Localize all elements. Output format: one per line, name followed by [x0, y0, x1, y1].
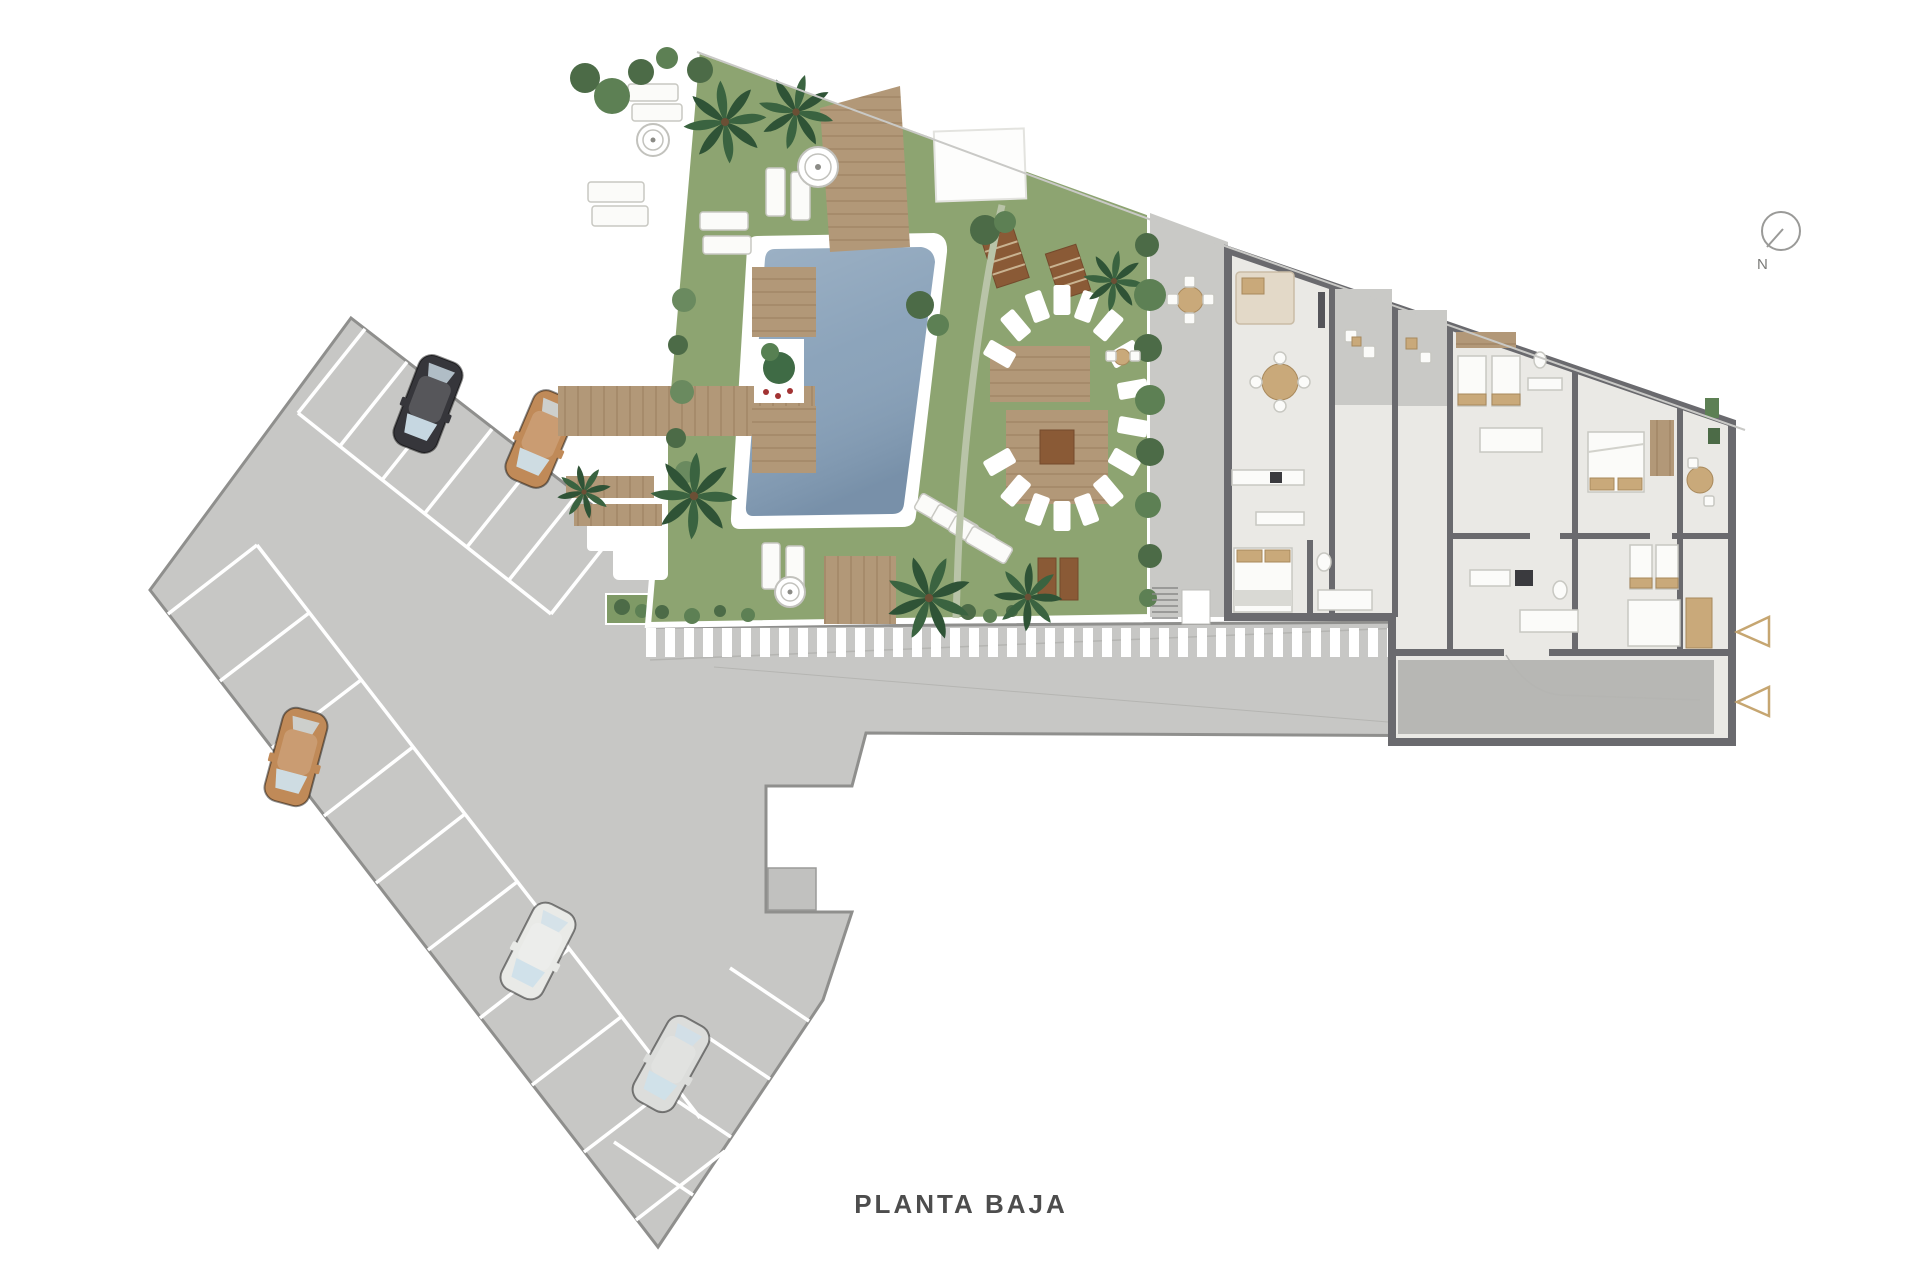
floor-title: PLANTA BAJA: [854, 1189, 1068, 1219]
garden-area: [546, 47, 1152, 657]
entrance-arrow: [1737, 617, 1769, 646]
shade-canopy: [934, 128, 1026, 201]
entrance-arrow: [1737, 687, 1769, 716]
deck-pier: [752, 267, 816, 337]
access-arrows: [1737, 617, 1769, 716]
deck-bottom: [824, 556, 896, 624]
deck-table: [1040, 430, 1074, 464]
north-compass: N: [1757, 212, 1800, 273]
site-plan-page: N PLANTA BAJA: [0, 0, 1920, 1280]
garage-ramp: [1398, 660, 1714, 734]
deck-pier: [752, 406, 816, 473]
pedestrian-crosswalk-band: [645, 628, 1405, 657]
entry-landing: [1182, 590, 1210, 624]
site-plan-canvas: N PLANTA BAJA: [0, 0, 1920, 1280]
compass-north-label: N: [1757, 256, 1768, 273]
ramp-structure: [768, 868, 816, 910]
pool-planter: [754, 339, 804, 403]
